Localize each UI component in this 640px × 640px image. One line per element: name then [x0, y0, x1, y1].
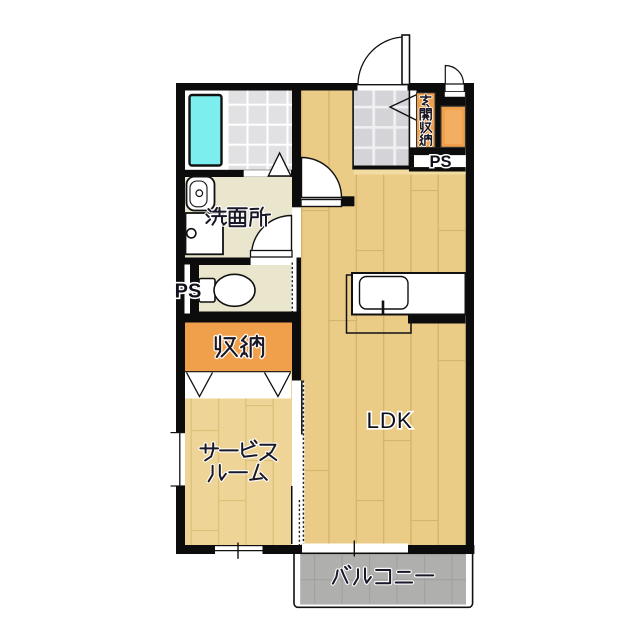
svg-text:PS: PS: [175, 281, 202, 303]
svg-text:LDK: LDK: [367, 408, 413, 433]
svg-text:PS: PS: [429, 153, 451, 171]
